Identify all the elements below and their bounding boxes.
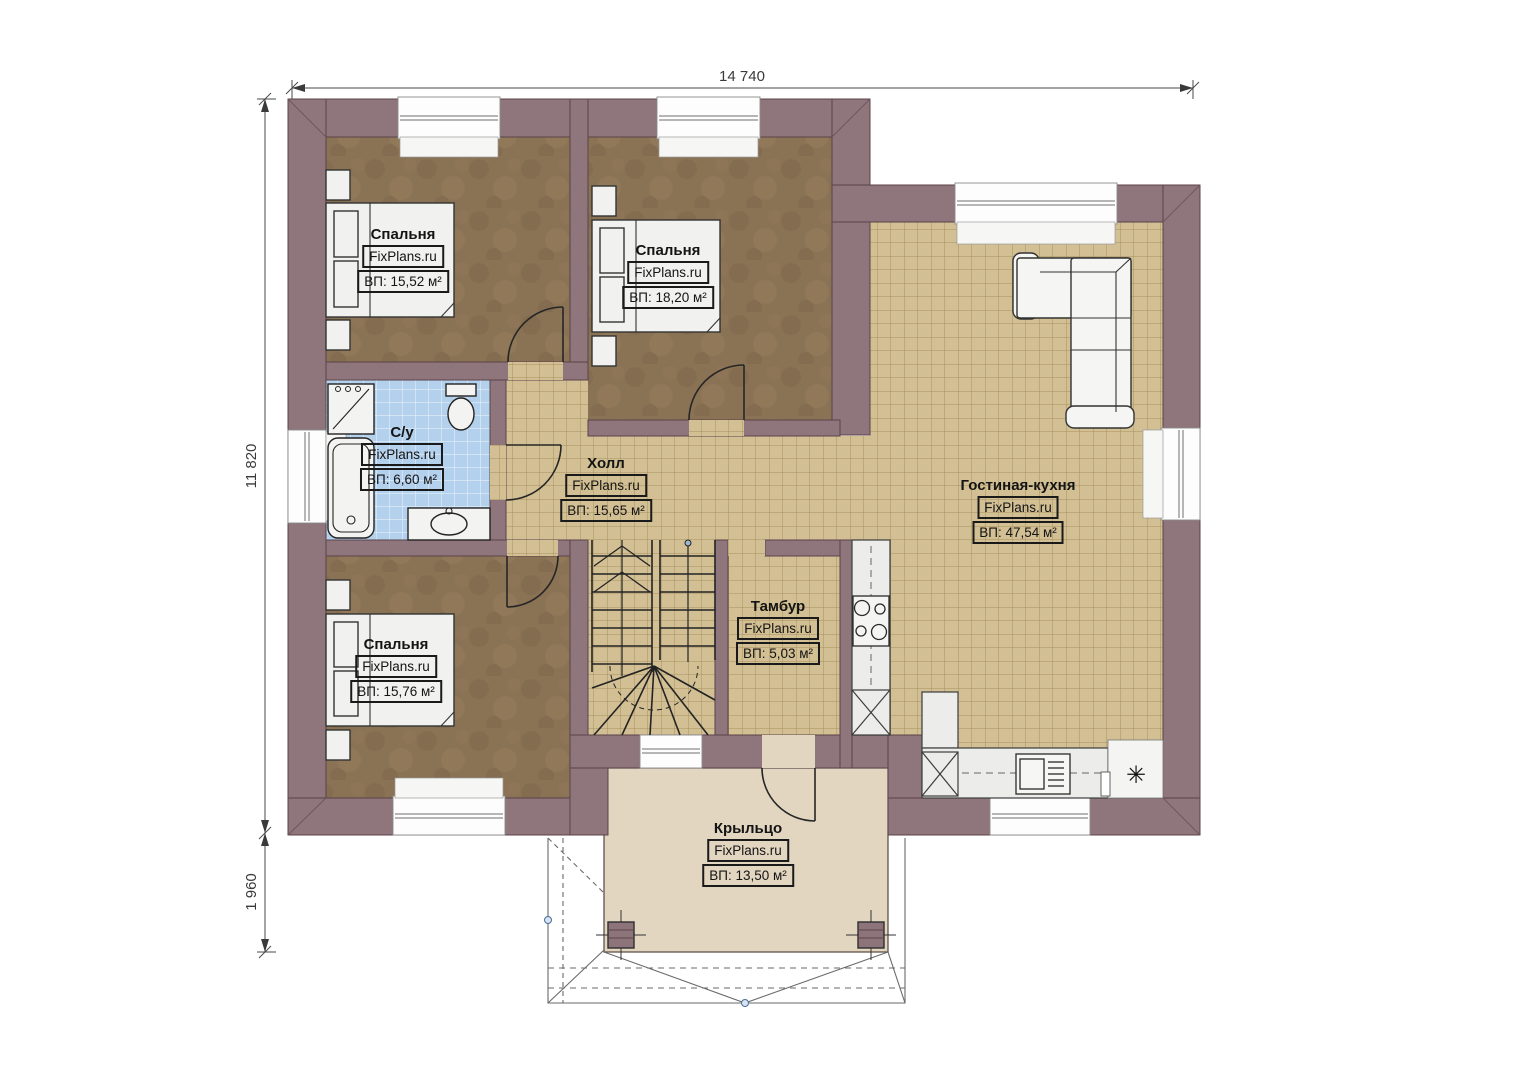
tambour-passage-opening: [728, 540, 765, 556]
roof-snap-dot: [742, 1000, 749, 1007]
kitchen-sink: [1016, 754, 1070, 794]
room-name-bedroom3: Спальня: [364, 636, 429, 653]
toilet: [446, 384, 476, 430]
room-watermark-bathroom: FixPlans.ru: [361, 443, 443, 466]
room-label-living-kitchen: Гостиная-кухня FixPlans.ru ВП: 47,54 м²: [961, 477, 1076, 544]
stove: [853, 596, 889, 646]
sofa-armrest-bottom: [1066, 406, 1134, 428]
room-label-porch: Крыльцо FixPlans.ru ВП: 13,50 м²: [702, 820, 794, 887]
bathroom-sink: [408, 508, 490, 540]
room-name-hall: Холл: [587, 455, 625, 472]
floor-plan-page: ✳: [0, 0, 1528, 1080]
room-watermark-living-kitchen: FixPlans.ru: [977, 496, 1059, 519]
stair-newel-dot: [685, 540, 691, 546]
room-name-tambour: Тамбур: [751, 598, 805, 615]
kitchen-counter-protrusion: [922, 692, 958, 748]
dimension-left-height: 11 820: [243, 93, 276, 839]
roof-snap-dot: [545, 917, 552, 924]
floor-plan-drawing: ✳: [0, 0, 1528, 1080]
room-area-bedroom3: ВП: 15,76 м²: [350, 680, 442, 703]
room-watermark-tambour: FixPlans.ru: [737, 617, 819, 640]
window-right: [1161, 428, 1200, 520]
bedroom3-door-opening: [507, 540, 558, 556]
bedroom1-door-opening: [508, 362, 563, 380]
wall-tambour-left: [715, 540, 728, 735]
sofa-seat-vertical: [1071, 258, 1131, 425]
wall-bedroom1-right: [570, 99, 588, 380]
room-name-porch: Крыльцо: [714, 820, 782, 837]
window-left: [288, 430, 326, 523]
room-watermark-bedroom3: FixPlans.ru: [355, 655, 437, 678]
room-watermark-porch: FixPlans.ru: [707, 839, 789, 862]
porch-door-opening: [762, 735, 815, 768]
dimension-top: 14 740: [286, 68, 1199, 99]
room-area-living-kitchen: ВП: 47,54 м²: [972, 521, 1064, 544]
room-area-porch: ВП: 13,50 м²: [702, 864, 794, 887]
room-label-tambour: Тамбур FixPlans.ru ВП: 5,03 м²: [736, 598, 820, 665]
corner-cabinet-left: [852, 690, 890, 735]
bathroom-door-opening: [490, 445, 506, 500]
room-name-bathroom: С/у: [390, 424, 413, 441]
corner-cabinet-bottom: [922, 752, 958, 796]
wall-stairs-left: [570, 540, 588, 735]
room-label-hall: Холл FixPlans.ru ВП: 15,65 м²: [560, 455, 652, 522]
room-area-bedroom1: ВП: 15,52 м²: [357, 270, 449, 293]
wall-kitchen-left: [840, 540, 852, 768]
room-watermark-bedroom1: FixPlans.ru: [362, 245, 444, 268]
room-watermark-hall: FixPlans.ru: [565, 474, 647, 497]
window-top-2: [657, 97, 760, 139]
boiler-corner: ✳: [1101, 740, 1163, 798]
wall-step-vertical: [832, 99, 870, 435]
dimension-top-label: 14 740: [719, 68, 765, 85]
wall-porch-right-block: [888, 735, 922, 798]
dimension-left-label: 11 820: [243, 444, 260, 489]
bedroom2-door-opening: [689, 420, 744, 436]
room-area-tambour: ВП: 5,03 м²: [736, 642, 820, 665]
wall-tambour-top: [765, 540, 840, 556]
room-watermark-bedroom2: FixPlans.ru: [627, 261, 709, 284]
room-area-bathroom: ВП: 6,60 м²: [360, 468, 444, 491]
room-label-bedroom2: Спальня FixPlans.ru ВП: 18,20 м²: [622, 242, 714, 309]
room-area-bedroom2: ВП: 18,20 м²: [622, 286, 714, 309]
room-label-bedroom1: Спальня FixPlans.ru ВП: 15,52 м²: [357, 226, 449, 293]
window-top-right: [955, 183, 1117, 224]
room-name-living-kitchen: Гостиная-кухня: [961, 477, 1076, 494]
dimension-left-porch: 1 960: [243, 833, 276, 958]
window-top-1: [398, 97, 500, 139]
window-porch-recessed: [640, 735, 702, 768]
window-bottom-2: [990, 796, 1090, 835]
room-name-bedroom1: Спальня: [371, 226, 436, 243]
dimension-porch-label: 1 960: [243, 873, 260, 911]
room-label-bedroom3: Спальня FixPlans.ru ВП: 15,76 м²: [350, 636, 442, 703]
room-name-bedroom2: Спальня: [636, 242, 701, 259]
window-bottom-1: [393, 796, 505, 835]
room-area-hall: ВП: 15,65 м²: [560, 499, 652, 522]
room-label-bathroom: С/у FixPlans.ru ВП: 6,60 м²: [360, 424, 444, 491]
boiler-symbol: ✳: [1126, 762, 1146, 789]
